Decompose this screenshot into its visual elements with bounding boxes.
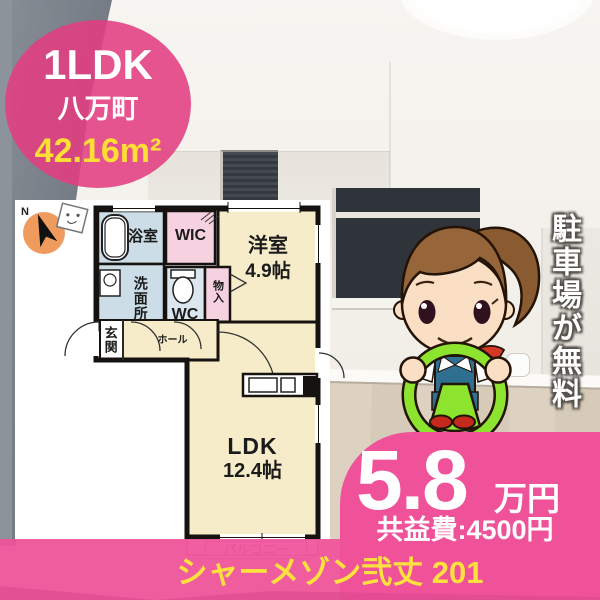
room-western-label: 洋室 — [226, 236, 310, 257]
sink-icon — [100, 270, 120, 296]
toilet-icon — [171, 270, 195, 303]
mascot-girl-illustration — [378, 212, 545, 442]
compass-icon: N — [21, 206, 65, 254]
rent-unit: 万円 — [494, 482, 560, 515]
room-entrance-label: 玄関 — [103, 322, 117, 358]
room-bath-label: 浴室 — [115, 229, 171, 245]
floor-area: 42.16m² — [5, 134, 191, 168]
wall-corner-line — [389, 62, 391, 192]
room-western-size: 4.9帖 — [226, 262, 310, 282]
location-name: 八万町 — [5, 96, 191, 123]
layout-type: 1LDK — [5, 44, 191, 86]
floor-plan: N 浴室 WIC 洋室 4.9帖 洗面所 WC 物入 玄関 ホール LDK 12… — [15, 200, 330, 540]
common-fee: 共益費:4500円 — [350, 517, 580, 544]
compass-n-label: N — [21, 206, 29, 218]
parking-banner: 駐車場が無料 — [547, 213, 580, 428]
dark-doorway — [220, 150, 278, 205]
building-name: シャーメゾン弐丈 201 — [60, 557, 600, 588]
hand — [401, 358, 426, 383]
kitchen-counter-icon — [243, 374, 317, 396]
house-doodle-icon — [57, 203, 88, 233]
property-badge: 1LDK 八万町 42.16m² — [5, 20, 191, 188]
room-washroom-label: 洗面所 — [133, 267, 148, 329]
room-wc-label: WC — [165, 307, 205, 324]
rent-value: 5.8 — [356, 438, 467, 522]
hand — [486, 358, 511, 383]
room-ldk-size: 12.4帖 — [200, 461, 305, 482]
room-storage-label: 物入 — [211, 272, 223, 312]
shoe — [453, 416, 475, 429]
room-ldk-label: LDK — [205, 434, 300, 458]
shoe — [430, 416, 452, 429]
room-wic-label: WIC — [166, 228, 215, 245]
room-hall-label: ホール — [145, 336, 200, 347]
flyer-canvas: N 浴室 WIC 洋室 4.9帖 洗面所 WC 物入 玄関 ホール LDK 12… — [0, 0, 600, 600]
